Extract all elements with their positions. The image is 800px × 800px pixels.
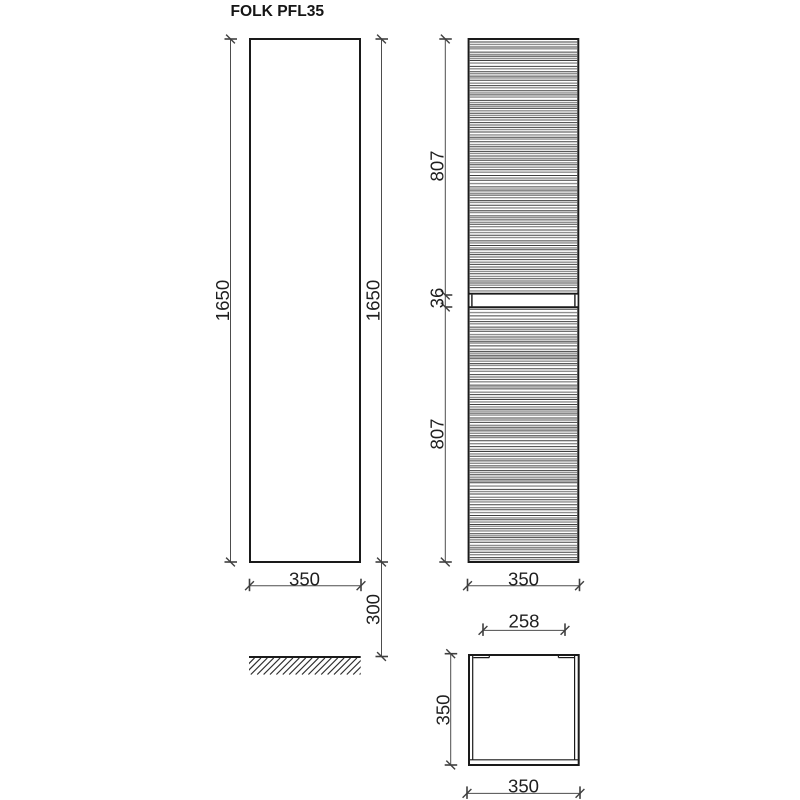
svg-text:350: 350 [508, 569, 539, 590]
svg-text:36: 36 [427, 288, 448, 309]
svg-text:350: 350 [289, 569, 320, 590]
svg-text:1650: 1650 [363, 280, 384, 321]
svg-text:350: 350 [432, 694, 453, 725]
svg-text:300: 300 [363, 594, 384, 625]
svg-text:258: 258 [508, 611, 539, 632]
svg-text:807: 807 [427, 418, 448, 449]
svg-text:FOLK PFL35: FOLK PFL35 [231, 3, 325, 20]
svg-text:1650: 1650 [212, 280, 233, 321]
svg-text:350: 350 [508, 775, 539, 796]
svg-text:807: 807 [427, 150, 448, 181]
